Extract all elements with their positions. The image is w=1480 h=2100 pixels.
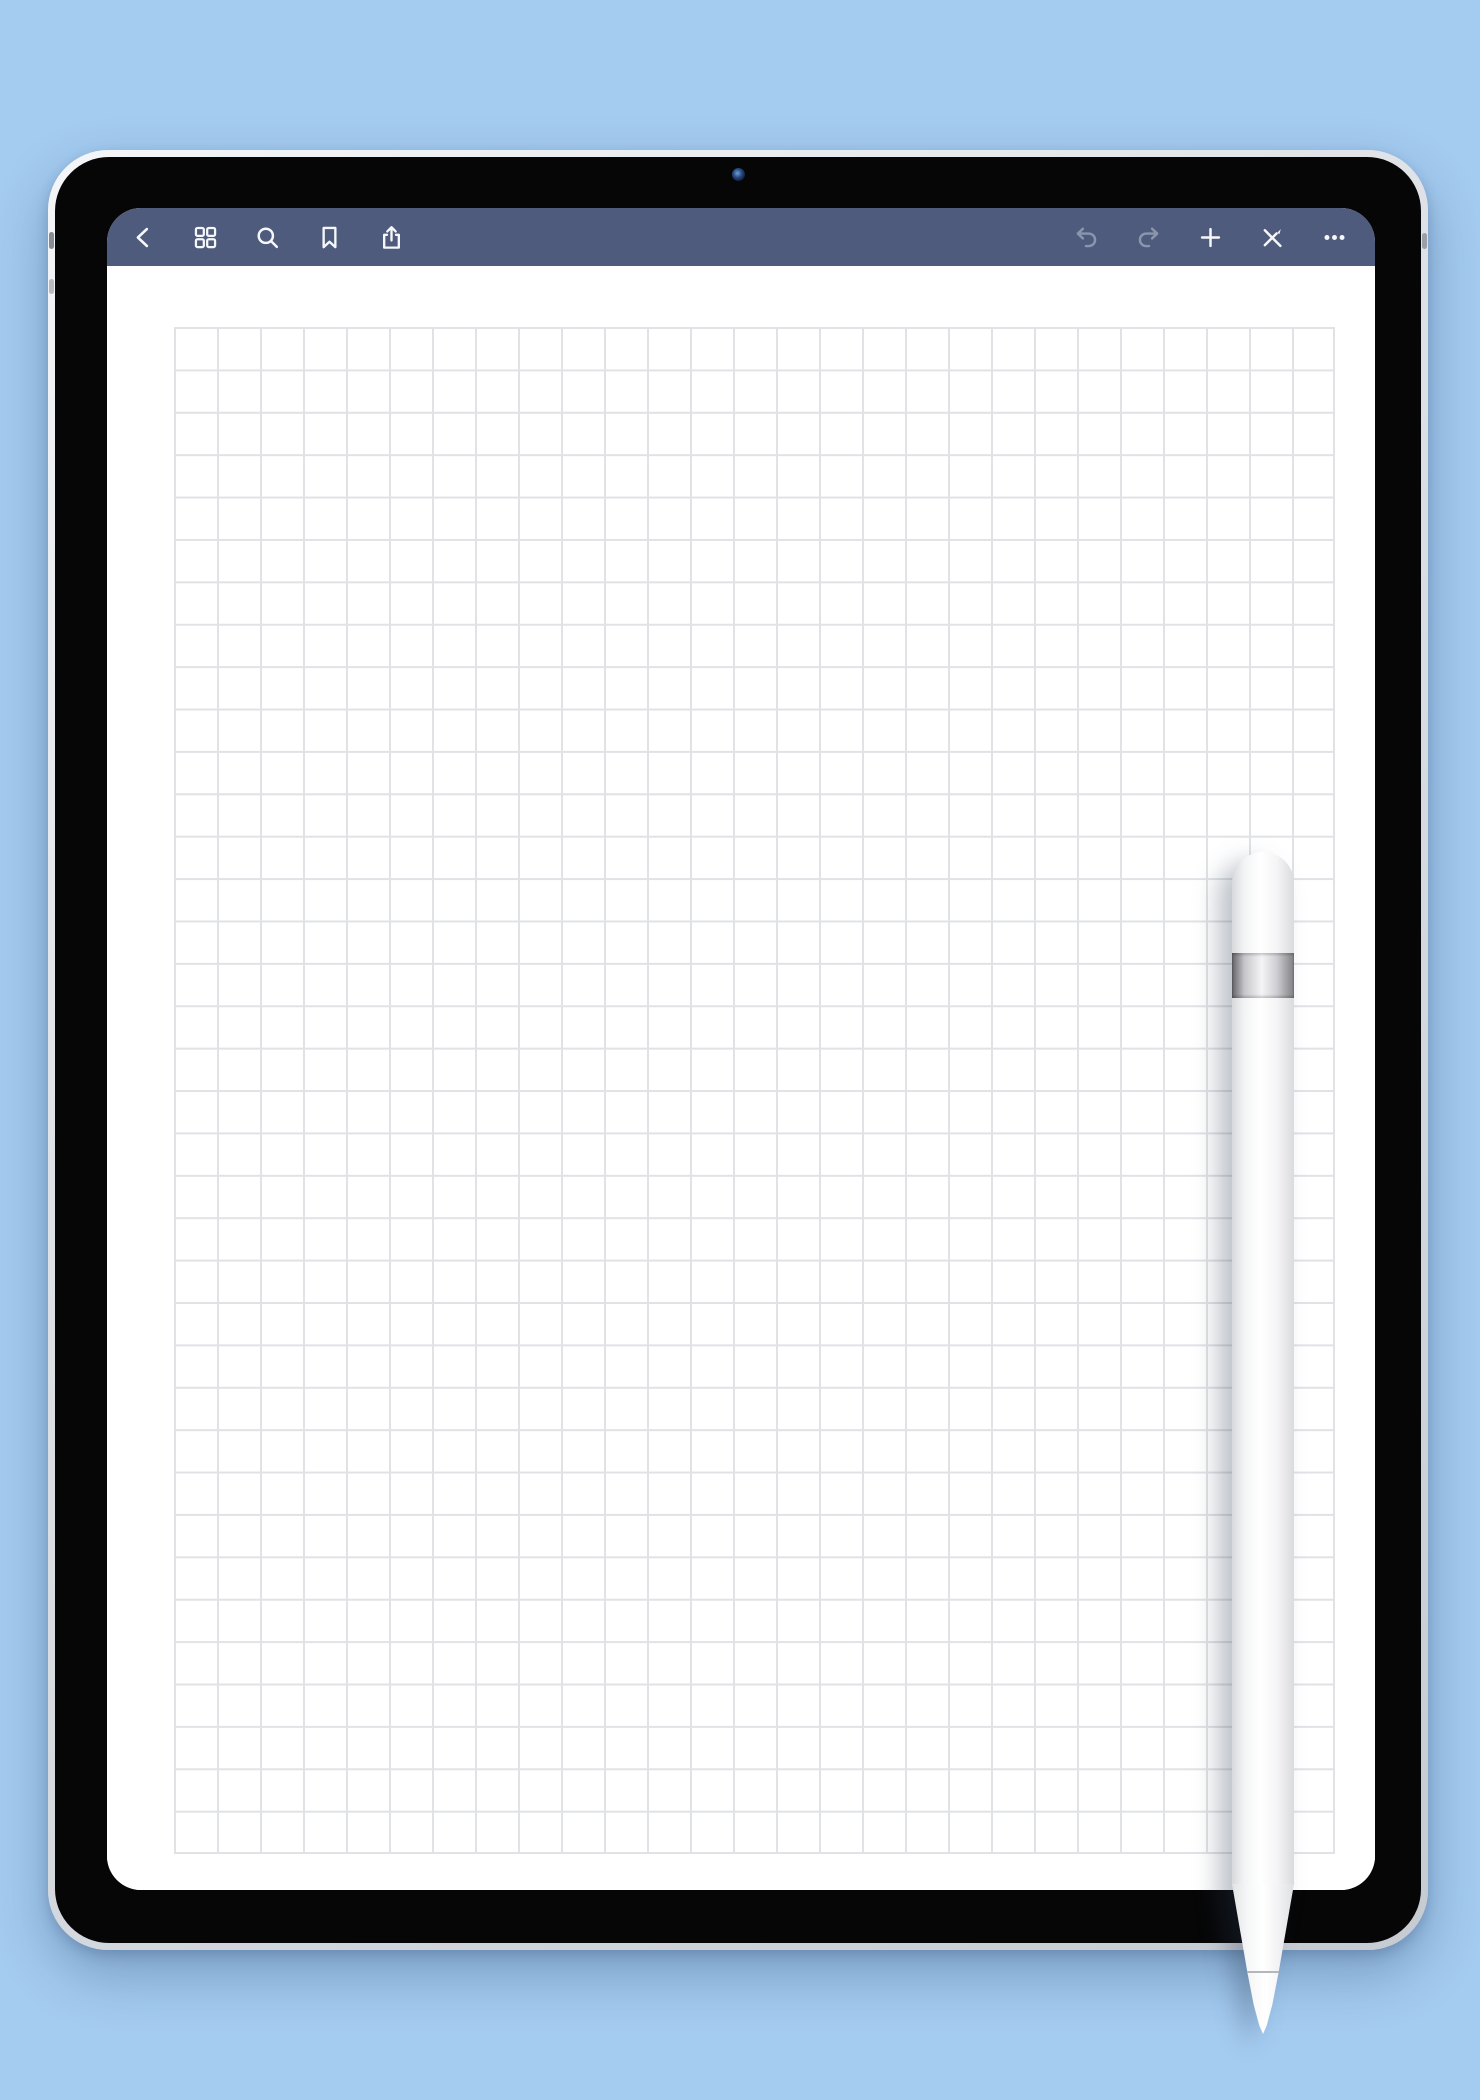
volume-up-button bbox=[49, 232, 54, 249]
add-page-button[interactable] bbox=[1196, 223, 1224, 251]
undo-button[interactable] bbox=[1072, 223, 1100, 251]
share-icon bbox=[378, 224, 405, 251]
volume-down-button bbox=[49, 279, 54, 294]
bookmark-button[interactable] bbox=[315, 223, 343, 251]
stylus-tip bbox=[1232, 1973, 1294, 2034]
stylus-pen bbox=[1232, 852, 1294, 2034]
desktop-background bbox=[0, 0, 1480, 2100]
tablet-device bbox=[48, 150, 1428, 1950]
more-button[interactable] bbox=[1320, 223, 1348, 251]
undo-icon bbox=[1073, 224, 1100, 251]
redo-button[interactable] bbox=[1134, 223, 1162, 251]
search-button[interactable] bbox=[253, 223, 281, 251]
stylus-taper bbox=[1232, 1884, 1294, 1973]
toolbar-right-group bbox=[1072, 223, 1375, 251]
stylus-tip-seam bbox=[1247, 1971, 1279, 1973]
thumbnails-grid-icon bbox=[192, 224, 219, 251]
front-camera-icon bbox=[732, 168, 745, 181]
tablet-screen bbox=[107, 208, 1375, 1890]
plus-icon bbox=[1197, 224, 1224, 251]
search-icon bbox=[254, 224, 281, 251]
power-button bbox=[1422, 233, 1427, 249]
stylus-body bbox=[1232, 852, 1294, 1885]
thumbnails-button[interactable] bbox=[191, 223, 219, 251]
graph-grid bbox=[174, 327, 1335, 1854]
back-button[interactable] bbox=[129, 223, 157, 251]
app-toolbar bbox=[107, 208, 1375, 266]
stylus-silver-band bbox=[1232, 953, 1294, 998]
chevron-left-icon bbox=[130, 224, 157, 251]
share-button[interactable] bbox=[377, 223, 405, 251]
pen-mode-button[interactable] bbox=[1258, 223, 1286, 251]
ellipsis-icon bbox=[1321, 224, 1348, 251]
toolbar-left-group bbox=[107, 223, 405, 251]
note-page[interactable] bbox=[107, 266, 1375, 1890]
pen-crossed-icon bbox=[1259, 224, 1286, 251]
redo-icon bbox=[1135, 224, 1162, 251]
bookmark-icon bbox=[316, 224, 343, 251]
